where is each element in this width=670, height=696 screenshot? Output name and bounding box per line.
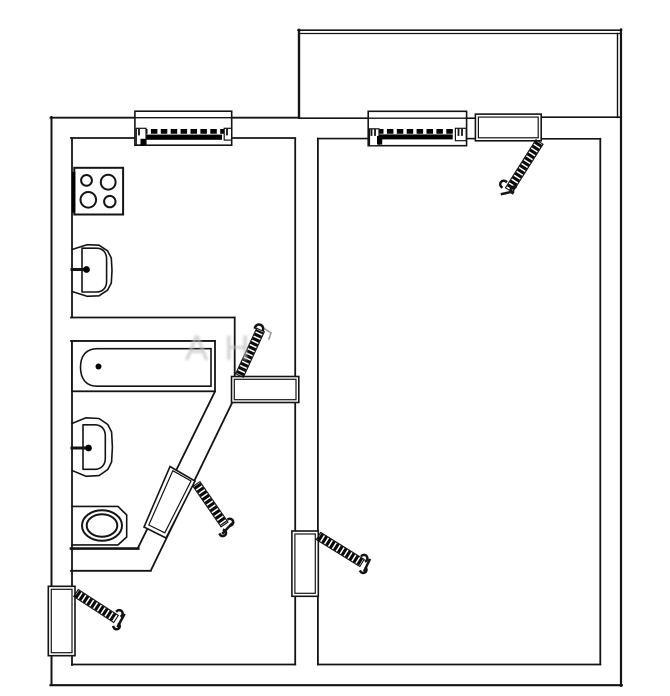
- svg-text:АН: АН: [185, 329, 266, 368]
